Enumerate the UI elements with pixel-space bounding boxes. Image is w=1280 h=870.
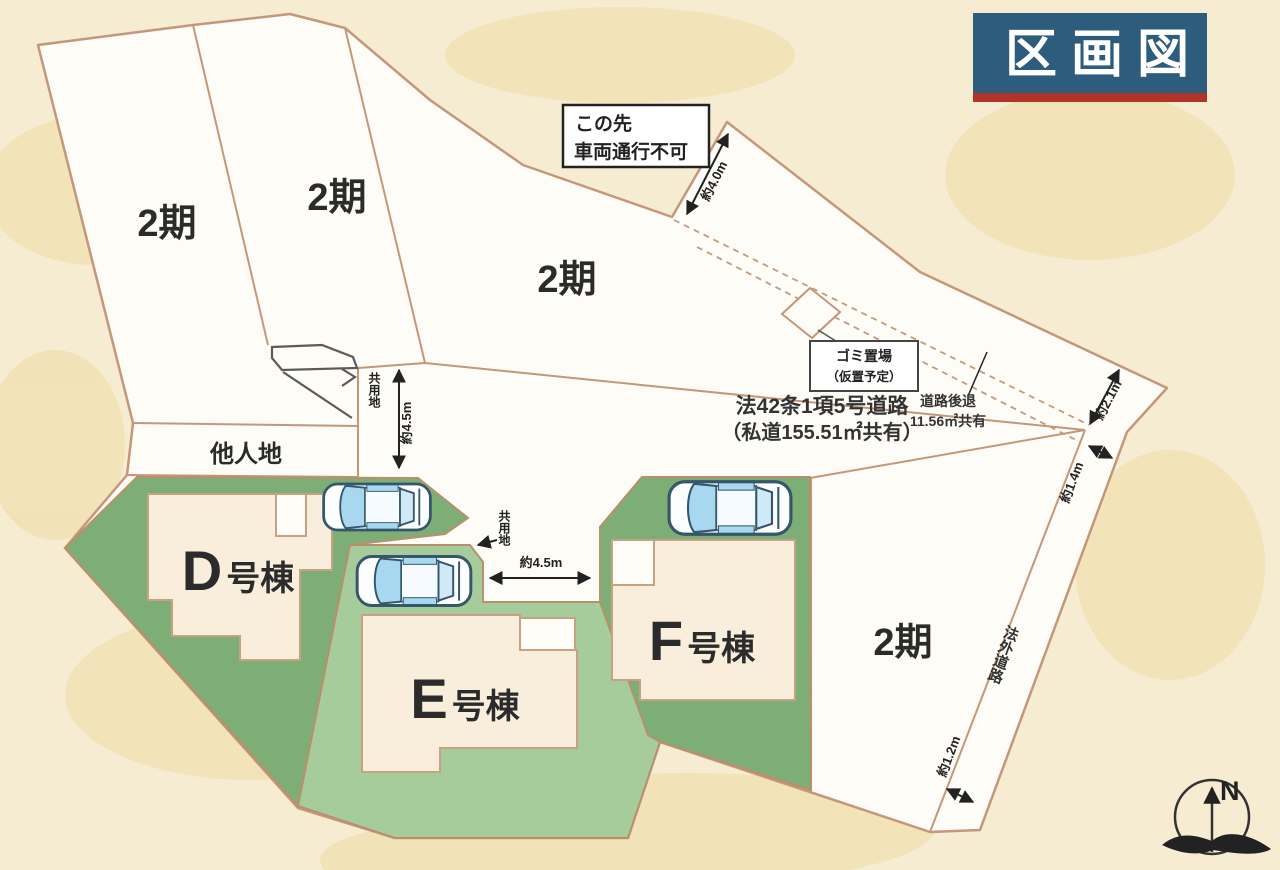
other-land-label: 他人地 [209,441,282,468]
notice-line2: 車両通行不可 [574,140,688,163]
building-d-notch [276,494,306,536]
lot-b-phase-label: 2期 [307,177,366,219]
garbage-line1: ゴミ置場 [836,348,892,364]
lot-g-phase-label: 2期 [873,622,932,664]
car-lot-d [324,484,431,530]
page-title: 区画図 [1005,26,1203,84]
plot-map-page: 約4.0m 約4.5m 約4.5m 約2.1m 約1.4m 約1.2m 2期 2… [0,0,1280,870]
lot-c-phase-label: 2期 [537,259,596,301]
road-law-line1: 法42条1項5号道路 [736,394,910,418]
setback-line1: 道路後退 [920,393,976,409]
building-e-notch [520,618,575,650]
garbage-place-label: ゴミ置場 （仮置予定） [810,341,918,391]
compass-north-label: N [1220,776,1240,806]
title-block: 区画図 [973,13,1207,102]
setback-line2: 11.56㎡共有 [910,413,986,429]
notice-line1: この先 [575,112,632,135]
car-lot-e [357,557,471,606]
common-land-label-mid: 共用地 [497,509,511,547]
car-lot-f [669,482,791,535]
no-vehicle-notice: この先 車両通行不可 [563,105,709,167]
common-land-label-left: 共用地 [367,371,381,409]
building-f-notch [612,540,654,585]
dim-4-5m-mid: 約4.5m [520,555,563,570]
road-law-line2: （私道155.51㎡共有） [721,420,922,444]
garbage-line2: （仮置予定） [826,369,901,384]
lot-a-phase-label: 2期 [137,203,196,245]
dim-4-5m-left: 約4.5m [399,402,414,445]
plot-map-drawing: 約4.0m 約4.5m 約4.5m 約2.1m 約1.4m 約1.2m 2期 2… [0,0,1280,870]
